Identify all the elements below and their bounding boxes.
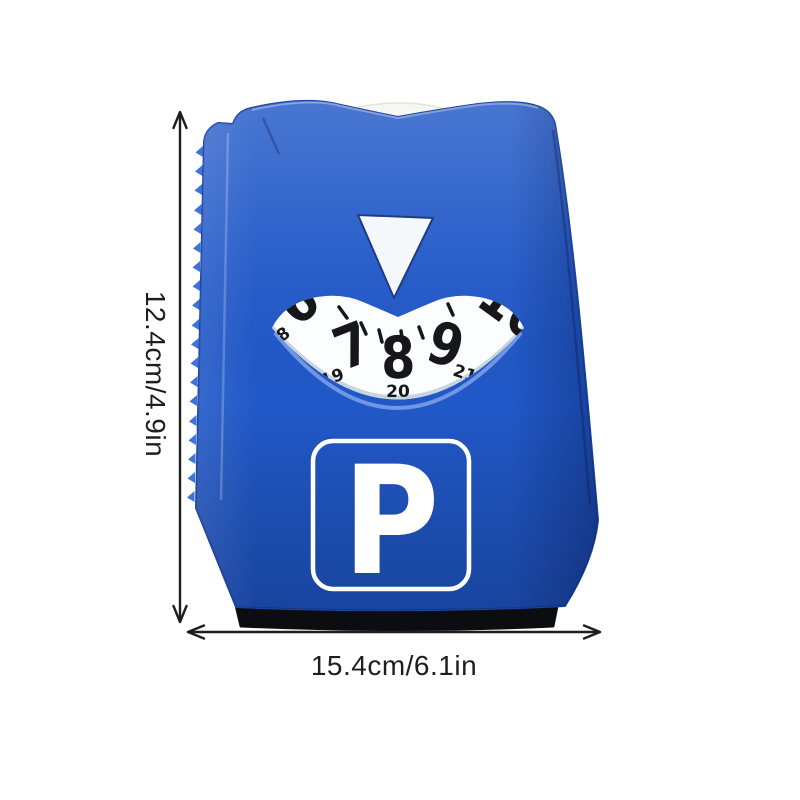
- parking-sign-letter: P: [343, 435, 440, 609]
- width-dimension-label: 15.4cm/6.1in: [311, 650, 477, 681]
- height-dimension-arrow: 12.4cm/4.9in: [140, 112, 186, 622]
- height-dimension-label: 12.4cm/4.9in: [140, 291, 171, 457]
- dial-minor-number: 20: [386, 382, 410, 402]
- width-dimension-arrow: 15.4cm/6.1in: [188, 626, 600, 682]
- parking-disc-product-photo: 6 7 8 9 10 8 19 20 21 P 12.4cm/4.9in 15.…: [0, 0, 800, 800]
